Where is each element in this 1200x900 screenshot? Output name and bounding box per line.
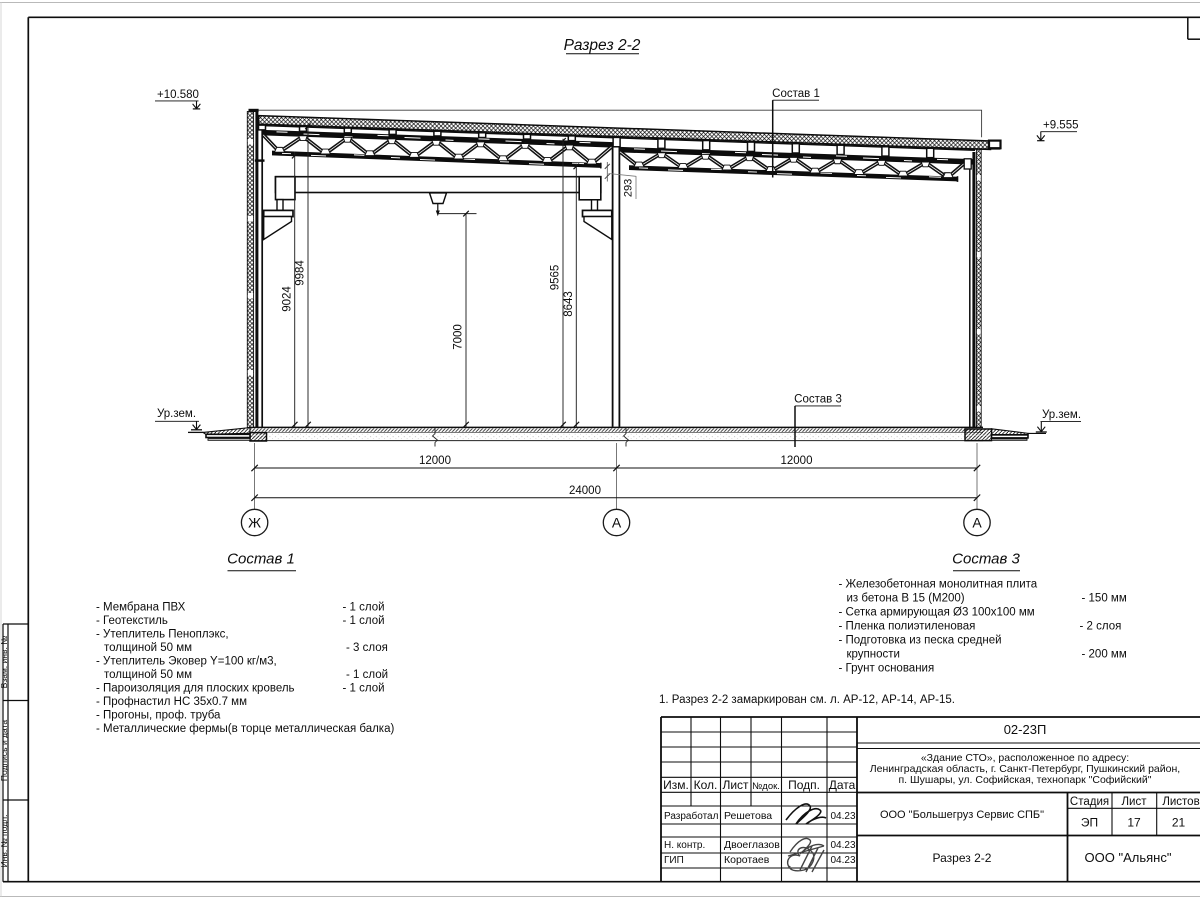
svg-text:- Утеплитель Эковер Y=100 кг/м: - Утеплитель Эковер Y=100 кг/м3,: [96, 655, 277, 667]
svg-text:Состав 3: Состав 3: [794, 394, 842, 406]
svg-text:А: А: [972, 515, 982, 531]
svg-text:толщиной 50 мм: толщиной 50 мм: [104, 669, 192, 681]
svg-text:- Профнастил НС 35х0.7 мм: - Профнастил НС 35х0.7 мм: [96, 696, 247, 708]
svg-text:Ур.зем.: Ур.зем.: [1042, 409, 1081, 421]
svg-text:Подпись и дата: Подпись и дата: [0, 720, 9, 781]
svg-text:ЭП: ЭП: [1081, 816, 1098, 830]
svg-text:из бетона В 15 (М200): из бетона В 15 (М200): [847, 592, 965, 604]
svg-text:02-23П: 02-23П: [1004, 722, 1047, 737]
svg-text:- 150 мм: - 150 мм: [1082, 592, 1127, 604]
svg-text:- Пленка полиэтиленовая: - Пленка полиэтиленовая: [839, 620, 976, 632]
svg-text:Состав 1: Состав 1: [227, 551, 295, 568]
svg-text:№док.: №док.: [752, 781, 780, 792]
svg-text:- 1 слой: - 1 слой: [343, 601, 385, 613]
svg-text:04.23: 04.23: [831, 811, 856, 822]
svg-text:Решетова: Решетова: [724, 810, 772, 822]
svg-text:- Сетка армирующая Ø3 100х100: - Сетка армирующая Ø3 100х100 мм: [839, 606, 1035, 618]
svg-text:Разрез 2-2: Разрез 2-2: [564, 37, 641, 54]
svg-text:21: 21: [1172, 816, 1186, 830]
svg-text:ООО "Альянс": ООО "Альянс": [1085, 850, 1172, 865]
svg-text:Инв. № подл.: Инв. № подл.: [0, 815, 9, 868]
svg-text:- Утеплитель Пеноплэкс,: - Утеплитель Пеноплэкс,: [96, 628, 229, 640]
svg-text:А: А: [612, 515, 622, 531]
svg-text:12000: 12000: [419, 455, 451, 467]
svg-text:293: 293: [623, 179, 635, 197]
svg-text:04.23: 04.23: [831, 855, 856, 866]
svg-text:ООО "Большегруз Сервис СПБ": ООО "Большегруз Сервис СПБ": [880, 809, 1044, 821]
svg-text:толщиной 50 мм: толщиной 50 мм: [104, 642, 192, 654]
svg-text:Стадия: Стадия: [1070, 796, 1109, 808]
svg-text:9565: 9565: [550, 265, 562, 291]
svg-text:7000: 7000: [453, 324, 465, 350]
svg-text:Лист: Лист: [722, 778, 749, 792]
svg-text:- 1 слой: - 1 слой: [346, 669, 388, 681]
svg-text:9984: 9984: [295, 260, 307, 286]
svg-text:Листов: Листов: [1162, 796, 1199, 808]
svg-text:Кол.: Кол.: [694, 778, 718, 792]
svg-text:12000: 12000: [781, 455, 813, 467]
svg-text:п. Шушары, ул. Софийская, техн: п. Шушары, ул. Софийская, технопарк "Соф…: [899, 774, 1152, 786]
svg-text:- Металлические фермы(в торце: - Металлические фермы(в торце металличес…: [96, 723, 394, 735]
svg-text:24000: 24000: [569, 485, 601, 497]
svg-text:Взам. инв. №: Взам. инв. №: [0, 636, 9, 689]
svg-text:- Мембрана ПВХ: - Мембрана ПВХ: [96, 601, 186, 613]
svg-text:Коротаев: Коротаев: [724, 854, 770, 866]
svg-text:Состав 3: Состав 3: [952, 551, 1020, 568]
svg-text:+9.555: +9.555: [1043, 120, 1079, 132]
svg-text:- 2 слоя: - 2 слоя: [1080, 620, 1122, 632]
svg-text:- Железобетонная монолитная п: - Железобетонная монолитная плита: [839, 578, 1038, 590]
svg-text:- Прогоны, проф. труба: - Прогоны, проф. труба: [96, 709, 221, 721]
svg-text:- 3 слоя: - 3 слоя: [346, 642, 388, 654]
svg-text:Разработал: Разработал: [664, 810, 719, 822]
svg-text:Ур.зем.: Ур.зем.: [157, 408, 196, 420]
svg-text:Двоеглазов: Двоеглазов: [724, 839, 780, 851]
svg-text:Лист: Лист: [1122, 796, 1148, 808]
svg-text:Дата: Дата: [829, 778, 856, 792]
svg-text:- 200 мм: - 200 мм: [1082, 648, 1127, 660]
svg-text:- Геотекстиль: - Геотекстиль: [96, 615, 168, 627]
svg-text:- 1 слой: - 1 слой: [343, 682, 385, 694]
svg-text:17: 17: [1127, 816, 1141, 830]
svg-text:Н. контр.: Н. контр.: [664, 840, 705, 851]
svg-text:8643: 8643: [563, 291, 575, 317]
svg-text:- Подготовка из песка средней: - Подготовка из песка средней: [839, 634, 1002, 646]
svg-text:9024: 9024: [281, 286, 293, 312]
svg-text:Разрез 2-2: Разрез 2-2: [933, 851, 992, 865]
svg-text:крупности: крупности: [847, 648, 900, 660]
svg-text:- 1 слой: - 1 слой: [343, 615, 385, 627]
svg-text:- Пароизоляция для плоских кро: - Пароизоляция для плоских кровель: [96, 682, 295, 694]
svg-text:Состав 1: Состав 1: [772, 88, 820, 100]
svg-text:1. Разрез 2-2 замаркирован см.: 1. Разрез 2-2 замаркирован см. л. АР-12,…: [659, 694, 955, 706]
svg-text:Изм.: Изм.: [663, 778, 689, 792]
svg-text:Подп.: Подп.: [788, 778, 820, 792]
svg-text:Ж: Ж: [248, 515, 261, 531]
svg-text:ГИП: ГИП: [664, 855, 684, 866]
svg-text:+10.580: +10.580: [157, 89, 199, 101]
svg-text:- Грунт основания: - Грунт основания: [839, 662, 935, 674]
svg-text:04.23: 04.23: [831, 840, 856, 851]
